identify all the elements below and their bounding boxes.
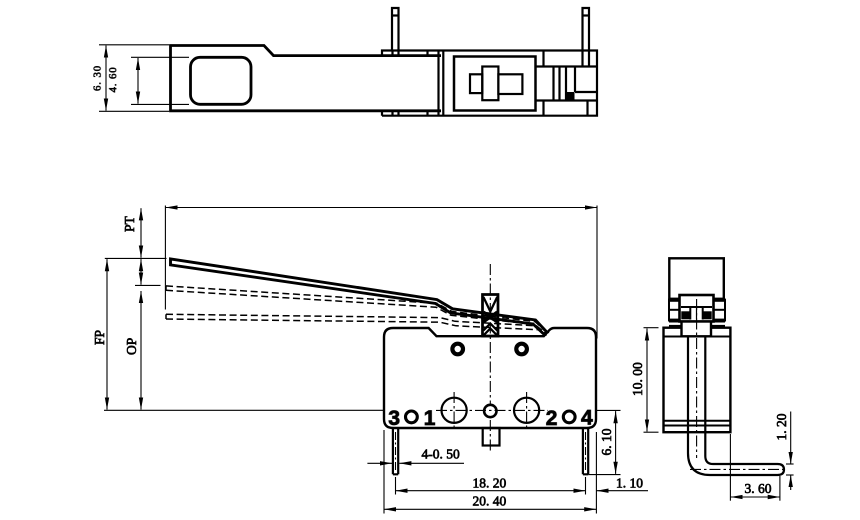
svg-text:4: 4 (581, 406, 593, 429)
svg-text:20. 40: 20. 40 (472, 494, 506, 509)
svg-text:18. 20: 18. 20 (472, 476, 506, 491)
svg-text:2: 2 (546, 407, 558, 430)
svg-text:PT: PT (122, 215, 137, 232)
svg-text:1: 1 (424, 407, 436, 430)
svg-text:6. 10: 6. 10 (599, 428, 614, 455)
svg-text:4-0. 50: 4-0. 50 (421, 447, 460, 462)
svg-text:3: 3 (388, 407, 400, 430)
svg-text:3. 60: 3. 60 (744, 481, 771, 496)
svg-text:6. 30: 6. 30 (92, 65, 104, 91)
svg-text:1. 10: 1. 10 (616, 476, 643, 491)
svg-text:FP: FP (92, 330, 107, 345)
svg-text:OP: OP (124, 338, 139, 355)
svg-text:1. 20: 1. 20 (774, 413, 789, 440)
svg-text:4. 60: 4. 60 (107, 66, 119, 92)
svg-text:10. 00: 10. 00 (630, 362, 645, 396)
